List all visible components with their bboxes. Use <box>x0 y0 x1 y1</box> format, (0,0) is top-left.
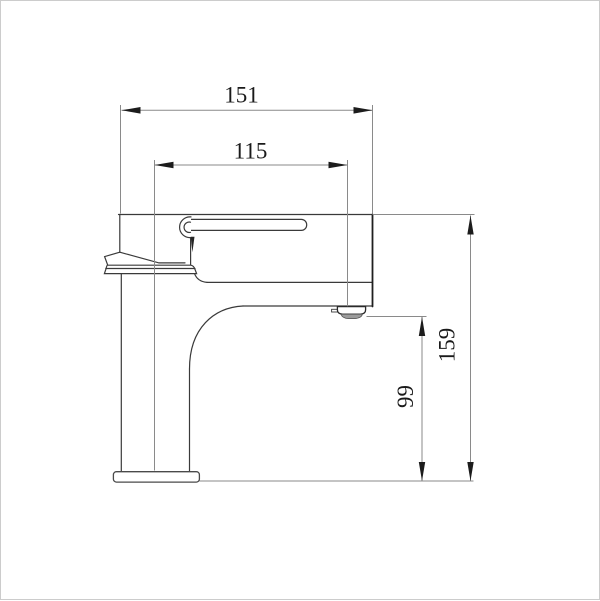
arrowhead-left-icon <box>122 107 141 114</box>
flange <box>104 265 196 273</box>
faucet-dimension-drawing: 151 115 159 99 <box>1 1 600 601</box>
arrowhead-up-icon <box>467 216 473 235</box>
handle-front-tip <box>191 237 195 253</box>
handle-hook-outer <box>180 217 191 238</box>
dimension-spout-clearance: 99 <box>367 317 427 482</box>
aerator-ring <box>337 307 365 315</box>
handle-lever <box>184 219 307 230</box>
body-beak <box>105 252 120 265</box>
technical-drawing-canvas: 151 115 159 99 <box>0 0 600 600</box>
arrowhead-down-icon <box>419 462 425 481</box>
aerator-lip <box>332 309 338 312</box>
dimension-spout-reach: 115 <box>155 139 348 471</box>
base-plate <box>113 472 199 482</box>
body-angled-seam <box>120 252 185 263</box>
dim-label-151: 151 <box>224 83 259 108</box>
faucet-outline <box>104 215 372 483</box>
dimension-overall-height: 159 <box>435 216 474 482</box>
dimension-system: 151 115 159 99 <box>121 83 475 482</box>
dim-label-115: 115 <box>234 139 268 164</box>
arrowhead-right-icon <box>329 162 348 169</box>
arrowhead-up-icon <box>419 317 425 336</box>
dim-label-99: 99 <box>393 385 418 408</box>
spout-sweep-curve <box>190 306 244 369</box>
arrowhead-left-icon <box>155 162 174 169</box>
arrowhead-down-icon <box>467 462 473 481</box>
dim-label-159: 159 <box>435 328 460 363</box>
arrowhead-right-icon <box>354 107 373 114</box>
aerator-mesh <box>341 314 362 318</box>
flange-fillet <box>195 274 208 283</box>
